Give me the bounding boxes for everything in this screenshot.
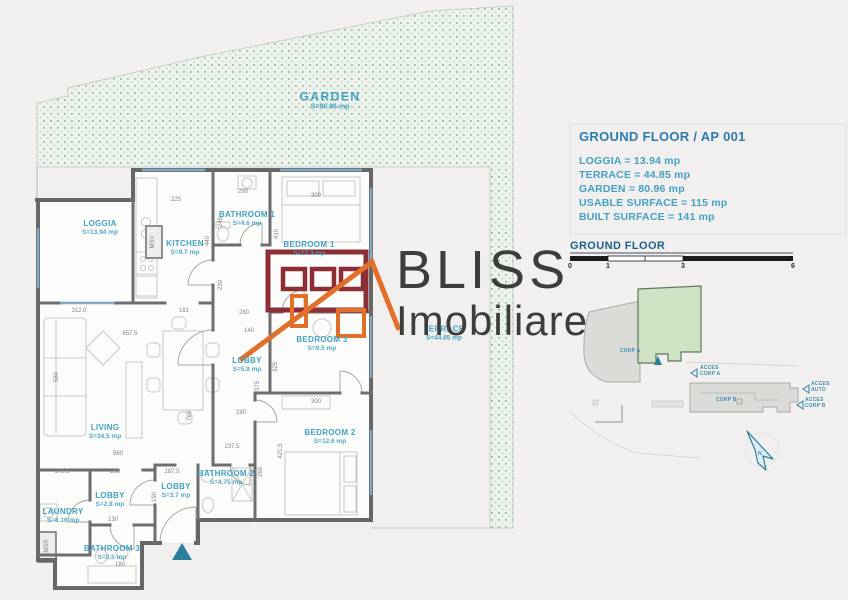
dimension-label: MSV (150, 235, 156, 248)
dimension-label: 312.0 (71, 308, 86, 314)
site-plan-label: AUTO (811, 388, 826, 393)
site-plan-label: CORP B (805, 404, 826, 409)
garden-label: GARDEN S=80.96 mp (299, 90, 360, 111)
scale-tick-label: 1 (606, 263, 610, 270)
dimension-label: 280 (236, 410, 246, 416)
dimension-label: 260 (258, 467, 264, 477)
info-panel: GROUND FLOOR / AP 001 LOGGIA = 13.94 mp … (579, 129, 839, 224)
room-label-bedroom2: BEDROOM 2 S=12.6 mp (304, 429, 355, 445)
dimension-label: 300 (311, 399, 321, 405)
dimension-label: 410 (274, 229, 280, 239)
dimension-label: 657.5 (122, 331, 137, 337)
dimension-label: 280 (239, 310, 249, 316)
area-info-line: LOGGIA = 13.94 mp (579, 154, 839, 168)
area-info-line: BUILT SURFACE = 141 mp (579, 210, 839, 224)
dimension-label: MSR (44, 539, 50, 552)
dimension-label: 440 (205, 236, 211, 246)
area-info-line: TERRACE = 44.85 mp (579, 168, 839, 182)
dimension-label: 421.5 (278, 443, 284, 458)
scale-tick-label: 3 (681, 263, 685, 270)
room-label-living: LIVING S=34.5 mp (89, 424, 121, 440)
dimension-label: 300 (311, 193, 321, 199)
dimension-label: 375 (255, 381, 261, 391)
room-label-bathroom2: BATHROOM 2 S=4.75 mp (198, 470, 254, 486)
site-plan-label: CORP B (716, 398, 737, 403)
dimension-label: 290 (238, 189, 248, 195)
area-info-line: GARDEN = 80.96 mp (579, 182, 839, 196)
room-label-lobby1: LOBBY S=5.9 mp (232, 357, 262, 373)
dimension-label: 180 (110, 469, 120, 475)
dimension-label: 325 (273, 362, 279, 372)
room-label-kitchen: KITCHEN S=9.7 mp (166, 240, 204, 256)
dimension-label: 580 (54, 372, 60, 382)
info-panel-title: GROUND FLOOR / AP 001 (579, 129, 839, 144)
site-plan-label: N (758, 452, 762, 457)
dimension-label: 187.5 (164, 469, 179, 475)
dimension-label: 560 (113, 451, 123, 457)
area-info-line: USABLE SURFACE = 115 mp (579, 196, 839, 210)
room-label-lobby2: LOBBY S=2.8 mp (95, 492, 125, 508)
dimension-label: 248 (218, 217, 224, 227)
room-label-laundry: LAUNDRY S=6.16 mp (43, 508, 84, 524)
room-label-loggia: LOGGIA S=13.94 mp (82, 220, 118, 236)
dimension-label: 172.5 (54, 469, 69, 475)
scale-tick-label: 6 (791, 263, 795, 270)
room-label-bedroom1: BEDROOM 1 S=17.3 mp (283, 241, 334, 257)
room-label-bedroom3: BEDROOM 3 S=9.5 mp (296, 336, 347, 352)
dimension-label: 130 (108, 517, 118, 523)
floor-plan-page: GARDEN S=80.96 mp TERRACE S=44.85 mp LOG… (0, 0, 848, 600)
dimension-label: 181 (179, 308, 189, 314)
text-layer: GARDEN S=80.96 mp TERRACE S=44.85 mp LOG… (0, 0, 848, 600)
dimension-label: 140 (244, 328, 254, 334)
dimension-label: 230 (218, 280, 224, 290)
dimension-label: 225 (171, 197, 181, 203)
site-plan-label: CORP A (620, 349, 640, 354)
room-label-bathroom3: BATHROOM 3 S=3.5 mp (84, 545, 140, 561)
dimension-label: 180 (115, 562, 125, 568)
dimension-label: 237.5 (224, 444, 239, 450)
brand-logo: BLISS Imobiliare (396, 242, 588, 344)
dimension-label: 190 (152, 492, 158, 502)
room-label-lobby3: LOBBY S=3.7 mp (161, 483, 191, 499)
dimension-label: 765 (187, 411, 193, 421)
site-plan-label: CORP A (700, 372, 720, 377)
room-label-bathroom1: BATHROOM 1 S=4.6 mp (219, 211, 275, 227)
brand-logo-line2: Imobiliare (396, 298, 588, 344)
brand-logo-line1: BLISS (396, 242, 588, 298)
